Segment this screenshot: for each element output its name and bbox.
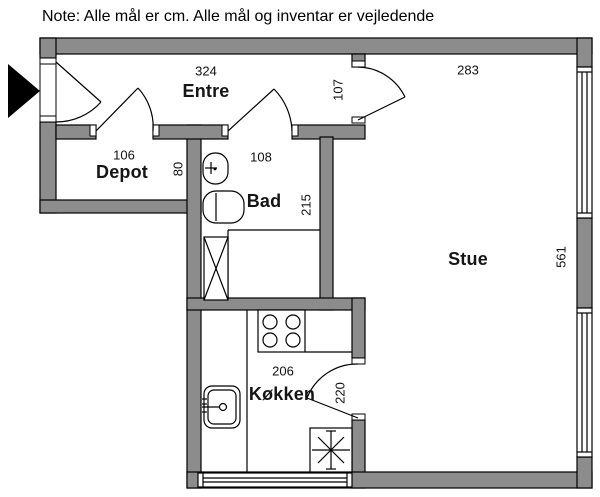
front-door	[40, 58, 101, 122]
wall-bad-right	[320, 137, 333, 310]
wall-kitchen-right-1	[352, 298, 365, 358]
note-text: Note: Alle mål er cm. Alle mål og invent…	[42, 8, 434, 26]
wall-depot-bottom	[40, 200, 201, 213]
window-kitchen-icon	[198, 473, 352, 487]
washbasin-icon	[203, 153, 228, 184]
koekken-door-dim: 220	[334, 382, 347, 404]
entre-room-label: Entre	[182, 82, 229, 100]
floor-plan-drawing	[0, 0, 600, 497]
wall-top	[40, 38, 592, 54]
wall-right-2	[577, 218, 592, 308]
door-stue	[352, 61, 405, 123]
entre-stue-door-dim: 107	[332, 79, 345, 101]
window-right-upper-icon	[577, 67, 592, 218]
bad-dim-width: 108	[250, 151, 272, 164]
refrigerator-icon	[310, 428, 352, 472]
toilet-icon	[203, 191, 244, 223]
sink-icon	[202, 386, 240, 428]
door-bad	[222, 89, 298, 136]
stue-dim-depth: 561	[555, 246, 568, 268]
door-depot	[90, 88, 159, 136]
bad-dim-depth: 215	[300, 194, 313, 216]
stue-dim-width: 283	[457, 64, 479, 77]
floor-plan: Note: Alle mål er cm. Alle mål og invent…	[0, 0, 600, 497]
wall-entre-bottom-2	[153, 125, 228, 139]
duct-shaft-icon	[204, 237, 228, 300]
bad-room-label: Bad	[247, 192, 282, 210]
shower-area	[228, 230, 320, 298]
stove-icon	[258, 310, 305, 352]
wall-left-lower	[40, 122, 56, 213]
koekken-room-label: Køkken	[249, 385, 315, 403]
stue-room-label: Stue	[448, 250, 488, 268]
depot-dim-width: 106	[113, 149, 135, 162]
wall-right-1	[577, 38, 592, 67]
koekken-dim-width: 206	[272, 365, 294, 378]
window-right-lower-icon	[577, 308, 592, 457]
entre-dim-width: 324	[195, 65, 217, 78]
wall-right-3	[577, 457, 592, 488]
depot-dim-depth: 80	[172, 162, 185, 176]
depot-room-label: Depot	[96, 163, 148, 181]
entrance-arrow-icon	[8, 64, 40, 118]
walls	[40, 38, 592, 488]
wall-left-upper	[40, 38, 56, 58]
